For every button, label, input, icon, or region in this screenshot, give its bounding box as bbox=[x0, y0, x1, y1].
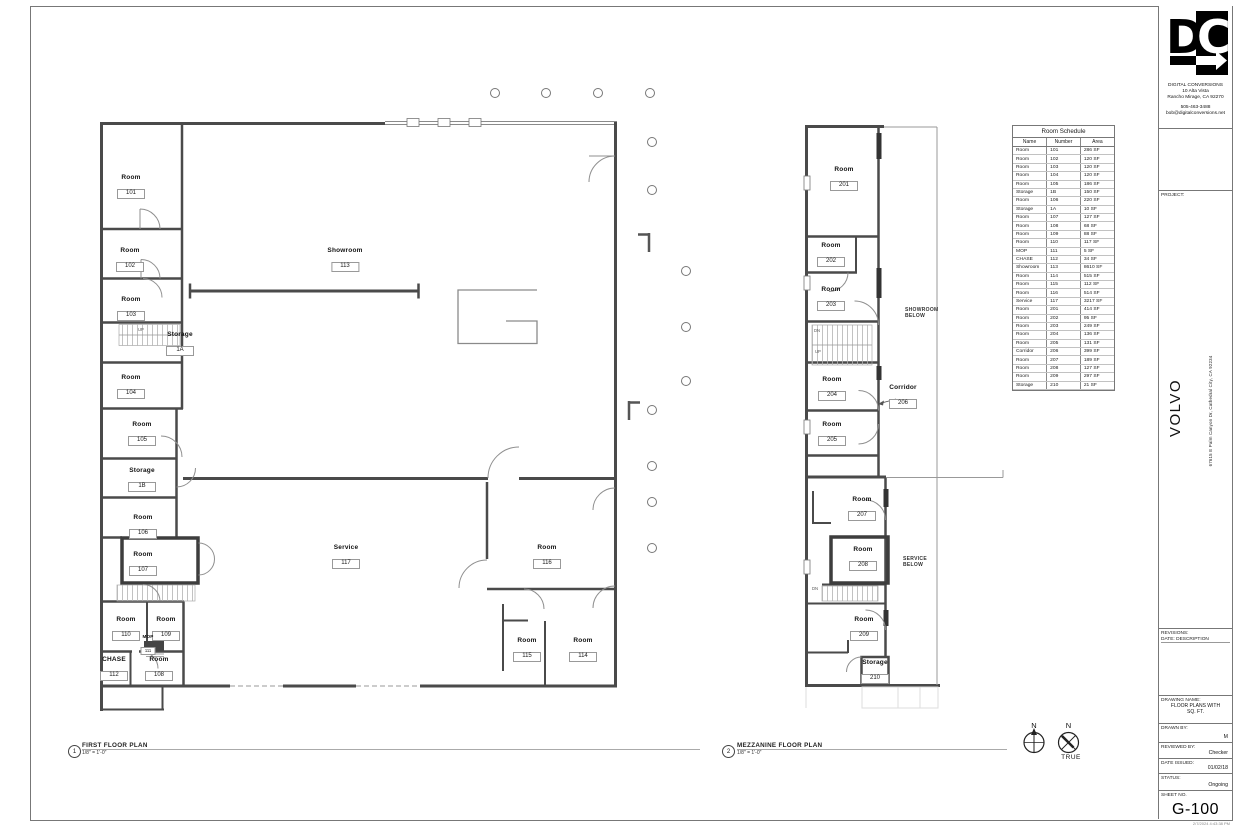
schedule-row: Room103120 SF bbox=[1013, 163, 1114, 171]
room-number-tag: 209 bbox=[850, 631, 878, 641]
first-floor-plan-number-bubble: 1 bbox=[68, 745, 81, 758]
room-number-tag: 117 bbox=[332, 559, 360, 569]
room-label-104: Room104 bbox=[117, 374, 145, 399]
schedule-row: Room116514 SF bbox=[1013, 289, 1114, 297]
schedule-cell: 110 bbox=[1047, 239, 1081, 247]
schedule-cell: Room bbox=[1013, 339, 1047, 347]
schedule-cell: 203 bbox=[1047, 322, 1081, 330]
drawing-sheet: { "titleblock": { "logo_d": "D", "logo_c… bbox=[0, 0, 1240, 827]
schedule-cell: Room bbox=[1013, 289, 1047, 297]
room-number-tag: 112 bbox=[100, 671, 128, 681]
mezzanine-plan-scale: 1/8" = 1'-0" bbox=[737, 750, 761, 756]
schedule-cell: 120 SF bbox=[1080, 163, 1114, 171]
room-name: Room bbox=[128, 421, 156, 428]
schedule-row: Room106220 SF bbox=[1013, 197, 1114, 205]
print-timestamp: 2/7/2024 4:43:38 PM bbox=[1140, 821, 1230, 826]
room-number-tag: 101 bbox=[117, 189, 145, 199]
room-number-tag: 110 bbox=[112, 631, 140, 641]
schedule-row: Room104120 SF bbox=[1013, 172, 1114, 180]
company-info: DIGITAL CONVERSIONS 10 Alta Vista Rancho… bbox=[1159, 83, 1232, 102]
schedule-row: Room208127 SF bbox=[1013, 364, 1114, 372]
project-address: 67615 E Palm Canyon Dr, Cathedral City, … bbox=[1204, 361, 1216, 461]
schedule-row: Room114515 SF bbox=[1013, 272, 1114, 280]
schedule-cell: 120 SF bbox=[1080, 155, 1114, 163]
schedule-row: Room107127 SF bbox=[1013, 214, 1114, 222]
schedule-cell: 249 SF bbox=[1080, 322, 1114, 330]
schedule-cell: 220 SF bbox=[1080, 197, 1114, 205]
room-label-113: Showroom113 bbox=[327, 247, 362, 272]
room-name: Room bbox=[129, 514, 157, 521]
schedule-cell: Room bbox=[1013, 230, 1047, 238]
schedule-cell: 95 SF bbox=[1080, 314, 1114, 322]
room-number-tag: 208 bbox=[849, 561, 877, 571]
schedule-cell: 34 SF bbox=[1080, 255, 1114, 263]
room-number-tag: 103 bbox=[117, 311, 145, 321]
mezzanine-plan-number-bubble: 2 bbox=[722, 745, 735, 758]
room-number-tag: 205 bbox=[818, 436, 846, 446]
schedule-cell: 5 SF bbox=[1080, 247, 1114, 255]
schedule-cell: Room bbox=[1013, 356, 1047, 364]
room-name: Room bbox=[817, 242, 845, 249]
schedule-cell: 115 bbox=[1047, 281, 1081, 289]
room-schedule-table: Room Schedule Name Number Area Room10128… bbox=[1012, 125, 1115, 391]
schedule-cell: Room bbox=[1013, 214, 1047, 222]
room-number-tag: 115 bbox=[513, 652, 541, 662]
drawing-name-line2: SQ. FT. bbox=[1159, 709, 1232, 715]
schedule-cell: 21 SF bbox=[1080, 381, 1114, 389]
schedule-col-area: Area bbox=[1080, 138, 1114, 147]
schedule-cell: Storage bbox=[1013, 381, 1047, 389]
room-name: Room bbox=[112, 616, 140, 623]
room-number-tag: 203 bbox=[817, 301, 845, 311]
room-label-108: Room108 bbox=[145, 656, 173, 681]
schedule-body: Room101286 SFRoom102120 SFRoom103120 SFR… bbox=[1013, 147, 1114, 390]
room-number-tag: 108 bbox=[145, 671, 173, 681]
company-email: bob@digitalconversions.net bbox=[1159, 111, 1232, 117]
schedule-title: Room Schedule bbox=[1013, 126, 1114, 138]
showroom-below-note: SHOWROOM BELOW bbox=[905, 307, 939, 319]
schedule-cell: Service bbox=[1013, 297, 1047, 305]
schedule-cell: 1A bbox=[1047, 205, 1081, 213]
schedule-cell: 111 bbox=[1047, 247, 1081, 255]
reviewed-by-value: Checker bbox=[1209, 750, 1228, 756]
room-name: Room bbox=[116, 247, 144, 254]
schedule-cell: 8610 SF bbox=[1080, 264, 1114, 272]
schedule-row: CHASE11234 SF bbox=[1013, 255, 1114, 263]
room-label-103: Room103 bbox=[117, 296, 145, 321]
service-below-note: SERVICE BELOW bbox=[903, 556, 927, 568]
schedule-cell: 127 SF bbox=[1080, 364, 1114, 372]
reviewed-by-label: REVIEWED BY: bbox=[1159, 743, 1232, 750]
schedule-cell: Room bbox=[1013, 172, 1047, 180]
schedule-cell: 186 SF bbox=[1080, 180, 1114, 188]
schedule-row: Service1173217 SF bbox=[1013, 297, 1114, 305]
room-label-mop: MOP111 bbox=[141, 634, 156, 657]
schedule-cell: 104 bbox=[1047, 172, 1081, 180]
room-name: Room bbox=[818, 421, 846, 428]
room-label-101: Room101 bbox=[117, 174, 145, 199]
room-label-114: Room114 bbox=[569, 637, 597, 662]
project-label: PROJECT: bbox=[1159, 191, 1232, 198]
schedule-cell: 117 bbox=[1047, 297, 1081, 305]
status-section: STATUS: Ongoing bbox=[1159, 773, 1232, 790]
schedule-cell: 3217 SF bbox=[1080, 297, 1114, 305]
schedule-row: Room102120 SF bbox=[1013, 155, 1114, 163]
schedule-cell: MOP bbox=[1013, 247, 1047, 255]
schedule-cell: 209 bbox=[1047, 373, 1081, 381]
schedule-cell: 103 bbox=[1047, 163, 1081, 171]
schedule-cell: Room bbox=[1013, 281, 1047, 289]
service-below-line2: BELOW bbox=[903, 562, 927, 568]
room-number-tag: 210 bbox=[861, 674, 889, 684]
schedule-cell: 206 bbox=[1047, 348, 1081, 356]
schedule-row: Storage1B150 SF bbox=[1013, 188, 1114, 196]
room-label-208: Room208 bbox=[849, 546, 877, 571]
schedule-cell: 120 SF bbox=[1080, 172, 1114, 180]
room-label-1b: Storage1B bbox=[128, 467, 156, 492]
room-name: Room bbox=[145, 656, 173, 663]
room-name: Storage bbox=[861, 659, 889, 666]
revisions-columns: DATE: DESCRIPTION bbox=[1161, 636, 1230, 644]
schedule-cell: Showroom bbox=[1013, 264, 1047, 272]
room-name: Room bbox=[818, 376, 846, 383]
schedule-cell: 210 bbox=[1047, 381, 1081, 389]
schedule-cell: Room bbox=[1013, 272, 1047, 280]
schedule-row: Room204136 SF bbox=[1013, 331, 1114, 339]
first-floor-plan-scale: 1/8" = 1'-0" bbox=[82, 750, 106, 756]
room-label-corridor-206: Corridor206 bbox=[889, 384, 917, 409]
room-name: Corridor bbox=[889, 384, 917, 391]
schedule-cell: 1B bbox=[1047, 188, 1081, 196]
room-number-tag: 204 bbox=[818, 391, 846, 401]
room-label-117: Service117 bbox=[332, 544, 360, 569]
schedule-cell: 114 bbox=[1047, 272, 1081, 280]
schedule-cell: 112 SF bbox=[1080, 281, 1114, 289]
first-floor-plan-title: FIRST FLOOR PLAN bbox=[82, 742, 148, 749]
room-number-tag: 107 bbox=[129, 566, 157, 576]
schedule-cell: 113 bbox=[1047, 264, 1081, 272]
schedule-cell: 101 bbox=[1047, 147, 1081, 155]
schedule-row: Room110117 SF bbox=[1013, 239, 1114, 247]
schedule-row: Room115112 SF bbox=[1013, 281, 1114, 289]
room-number-tag: 109 bbox=[152, 631, 180, 641]
room-number-tag: 114 bbox=[569, 652, 597, 662]
schedule-cell: 201 bbox=[1047, 306, 1081, 314]
schedule-cell: Room bbox=[1013, 197, 1047, 205]
schedule-row: Room10868 SF bbox=[1013, 222, 1114, 230]
mezzanine-plan-title: MEZZANINE FLOOR PLAN bbox=[737, 742, 822, 749]
status-value: Ongoing bbox=[1208, 782, 1228, 788]
room-number-tag: 111 bbox=[141, 647, 156, 655]
date-issued-value: 01/02/18 bbox=[1208, 765, 1228, 771]
schedule-cell: Corridor bbox=[1013, 348, 1047, 356]
room-number-tag: 1A bbox=[166, 346, 194, 356]
dn-label-mz-stair: DN bbox=[814, 328, 820, 333]
first-floor-plan-title-line bbox=[82, 749, 700, 750]
schedule-row: Room10988 SF bbox=[1013, 230, 1114, 238]
schedule-cell: 106 bbox=[1047, 197, 1081, 205]
up-label-mz-stair: UP bbox=[815, 349, 821, 354]
true-north-caption: TRUE bbox=[1061, 754, 1081, 761]
schedule-cell: 108 bbox=[1047, 222, 1081, 230]
up-label-ff-stair: UP bbox=[138, 327, 144, 332]
sheet-number-label: SHEET NO. bbox=[1159, 791, 1232, 798]
schedule-row: Room203249 SF bbox=[1013, 322, 1114, 330]
revisions-section: REVISIONS: DATE: DESCRIPTION bbox=[1159, 628, 1232, 695]
schedule-cell: 208 bbox=[1047, 364, 1081, 372]
room-name: Room bbox=[152, 616, 180, 623]
drawn-by-value: M bbox=[1224, 734, 1228, 740]
room-number-tag: 106 bbox=[129, 529, 157, 539]
room-name: Room bbox=[117, 174, 145, 181]
schedule-cell: 116 bbox=[1047, 289, 1081, 297]
room-number-tag: 116 bbox=[533, 559, 561, 569]
schedule-cell: Room bbox=[1013, 322, 1047, 330]
schedule-row: Room209297 SF bbox=[1013, 373, 1114, 381]
schedule-cell: Storage bbox=[1013, 205, 1047, 213]
schedule-col-name: Name bbox=[1013, 138, 1047, 147]
room-number-tag: 1B bbox=[128, 482, 156, 492]
reviewed-by-section: REVIEWED BY: Checker bbox=[1159, 742, 1232, 758]
room-label-209: Room209 bbox=[850, 616, 878, 641]
room-name: Room bbox=[513, 637, 541, 644]
room-label-1a: Storage1A bbox=[166, 331, 194, 356]
schedule-row: Room101286 SF bbox=[1013, 147, 1114, 155]
room-label-102: Room102 bbox=[116, 247, 144, 272]
company-contact: 505-463-3488 bob@digitalconversions.net bbox=[1159, 105, 1232, 117]
schedule-cell: 286 SF bbox=[1080, 147, 1114, 155]
date-issued-section: DATE ISSUED: 01/02/18 bbox=[1159, 758, 1232, 773]
schedule-row: Storage1A10 SF bbox=[1013, 205, 1114, 213]
room-label-106: Room106 bbox=[129, 514, 157, 539]
drawn-by-label: DRAWN BY: bbox=[1159, 724, 1232, 731]
room-label-116: Room116 bbox=[533, 544, 561, 569]
schedule-cell: 150 SF bbox=[1080, 188, 1114, 196]
schedule-cell: Room bbox=[1013, 155, 1047, 163]
schedule-cell: 105 bbox=[1047, 180, 1081, 188]
room-name: CHASE bbox=[100, 656, 128, 663]
room-label-storage-210: Storage210 bbox=[861, 659, 889, 684]
schedule-grid: Name Number Area Room101286 SFRoom102120… bbox=[1013, 138, 1114, 390]
schedule-cell: Room bbox=[1013, 331, 1047, 339]
schedule-row: MOP1115 SF bbox=[1013, 247, 1114, 255]
schedule-cell: 127 SF bbox=[1080, 214, 1114, 222]
titleblock-spacer-section bbox=[1159, 128, 1232, 190]
digital-conversions-logo-icon: D C bbox=[1164, 11, 1228, 77]
schedule-cell: 399 SF bbox=[1080, 348, 1114, 356]
showroom-below-line2: BELOW bbox=[905, 313, 939, 319]
status-label: STATUS: bbox=[1159, 774, 1232, 781]
room-number-tag: 105 bbox=[128, 436, 156, 446]
room-name: Room bbox=[850, 616, 878, 623]
room-number-tag: 206 bbox=[889, 399, 917, 409]
dn-label-mz-stair2: DN bbox=[812, 586, 818, 591]
schedule-cell: 136 SF bbox=[1080, 331, 1114, 339]
schedule-row: Storage21021 SF bbox=[1013, 381, 1114, 389]
room-label-109: Room109 bbox=[152, 616, 180, 641]
schedule-cell: Room bbox=[1013, 364, 1047, 372]
schedule-col-number: Number bbox=[1047, 138, 1081, 147]
schedule-row: Room105186 SF bbox=[1013, 180, 1114, 188]
room-label-205: Room205 bbox=[818, 421, 846, 446]
schedule-cell: 189 SF bbox=[1080, 356, 1114, 364]
room-name: Storage bbox=[128, 467, 156, 474]
room-label-chase: CHASE112 bbox=[100, 656, 128, 681]
schedule-cell: Room bbox=[1013, 239, 1047, 247]
schedule-header-row: Name Number Area bbox=[1013, 138, 1114, 147]
schedule-row: Room207189 SF bbox=[1013, 356, 1114, 364]
schedule-cell: 515 SF bbox=[1080, 272, 1114, 280]
room-name: Showroom bbox=[327, 247, 362, 254]
room-number-tag: 102 bbox=[116, 262, 144, 272]
schedule-row: Room205131 SF bbox=[1013, 339, 1114, 347]
schedule-cell: Room bbox=[1013, 147, 1047, 155]
schedule-cell: 88 SF bbox=[1080, 230, 1114, 238]
schedule-row: Room201414 SF bbox=[1013, 306, 1114, 314]
room-label-105: Room105 bbox=[128, 421, 156, 446]
room-name: Storage bbox=[166, 331, 194, 338]
schedule-cell: Room bbox=[1013, 373, 1047, 381]
project-north-label: N bbox=[1031, 721, 1036, 730]
room-label-115: Room115 bbox=[513, 637, 541, 662]
room-name: Room bbox=[533, 544, 561, 551]
room-label-110: Room110 bbox=[112, 616, 140, 641]
room-label-202: Room202 bbox=[817, 242, 845, 267]
room-name: Room bbox=[817, 286, 845, 293]
room-number-tag: 104 bbox=[117, 389, 145, 399]
schedule-cell: 68 SF bbox=[1080, 222, 1114, 230]
company-address-2: Rancho Mirage, CA 92270 bbox=[1159, 95, 1232, 101]
schedule-cell: CHASE bbox=[1013, 255, 1047, 263]
room-name: Room bbox=[830, 166, 858, 173]
schedule-cell: 514 SF bbox=[1080, 289, 1114, 297]
schedule-cell: 204 bbox=[1047, 331, 1081, 339]
mezzanine-plan-title-line bbox=[737, 749, 1007, 750]
schedule-cell: 205 bbox=[1047, 339, 1081, 347]
room-name: Room bbox=[569, 637, 597, 644]
room-name: Room bbox=[117, 374, 145, 381]
room-number-tag: 202 bbox=[817, 257, 845, 267]
schedule-cell: 109 bbox=[1047, 230, 1081, 238]
room-label-203: Room203 bbox=[817, 286, 845, 311]
sheet-number-value: G-100 bbox=[1159, 801, 1232, 819]
schedule-cell: 107 bbox=[1047, 214, 1081, 222]
drawn-by-section: DRAWN BY: M bbox=[1159, 723, 1232, 742]
room-name: Room bbox=[117, 296, 145, 303]
true-north-label: N bbox=[1066, 721, 1071, 730]
room-label-204: Room204 bbox=[818, 376, 846, 401]
sheet-number-section: SHEET NO. G-100 bbox=[1159, 790, 1232, 819]
room-number-tag: 201 bbox=[830, 181, 858, 191]
schedule-row: Showroom1138610 SF bbox=[1013, 264, 1114, 272]
room-label-107: Room107 bbox=[129, 551, 157, 576]
room-name: Room bbox=[849, 546, 877, 553]
schedule-cell: Room bbox=[1013, 163, 1047, 171]
room-number-tag: 207 bbox=[848, 511, 876, 521]
schedule-row: Room20295 SF bbox=[1013, 314, 1114, 322]
room-name: MOP bbox=[141, 634, 156, 639]
drawing-name-section: DRAWING NAME: FLOOR PLANS WITH SQ. FT. bbox=[1159, 695, 1232, 723]
room-name: Service bbox=[332, 544, 360, 551]
schedule-cell: 202 bbox=[1047, 314, 1081, 322]
room-label-201: Room201 bbox=[830, 166, 858, 191]
room-name: Room bbox=[848, 496, 876, 503]
schedule-cell: Room bbox=[1013, 306, 1047, 314]
schedule-cell: Room bbox=[1013, 180, 1047, 188]
schedule-cell: 102 bbox=[1047, 155, 1081, 163]
schedule-cell: 207 bbox=[1047, 356, 1081, 364]
schedule-cell: 112 bbox=[1047, 255, 1081, 263]
room-name: Room bbox=[129, 551, 157, 558]
schedule-cell: 117 SF bbox=[1080, 239, 1114, 247]
schedule-cell: 414 SF bbox=[1080, 306, 1114, 314]
project-name: VOLVO bbox=[1165, 380, 1185, 436]
schedule-cell: 297 SF bbox=[1080, 373, 1114, 381]
schedule-cell: 131 SF bbox=[1080, 339, 1114, 347]
schedule-row: Corridor206399 SF bbox=[1013, 348, 1114, 356]
schedule-cell: Storage bbox=[1013, 188, 1047, 196]
schedule-cell: Room bbox=[1013, 222, 1047, 230]
room-label-207: Room207 bbox=[848, 496, 876, 521]
room-number-tag: 113 bbox=[331, 262, 359, 272]
schedule-cell: 10 SF bbox=[1080, 205, 1114, 213]
schedule-cell: Room bbox=[1013, 314, 1047, 322]
